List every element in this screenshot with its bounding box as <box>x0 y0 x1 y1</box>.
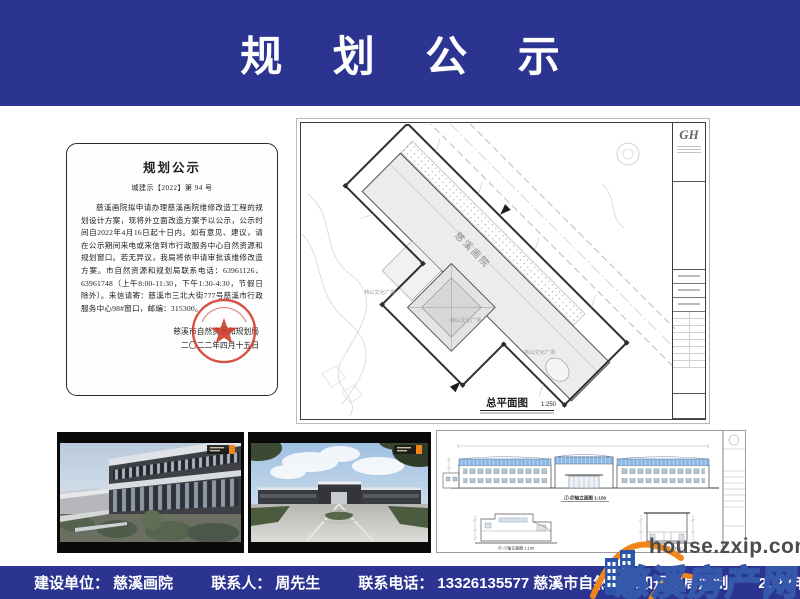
official-seal-icon <box>189 296 259 366</box>
builder-value: 慈溪画院 <box>113 575 173 592</box>
elevation-title-block <box>723 431 745 552</box>
phone-label: 联系电话： <box>358 575 433 592</box>
site-plan-drawing: 慈溪画院 峙山文化广场 峙山文化广场 峙山文化广场 总平面图 1:250 <box>302 124 675 419</box>
section-label-2: 1-1剖面图 1:150 <box>653 545 683 551</box>
footer-producer-info: 慈溪市自然资源和规划局监制 2022年4月15日 <box>533 572 800 593</box>
plan-scale: 1:250 <box>541 402 557 408</box>
notice-doc-number: 城建示【2022】第 94 号 <box>81 183 263 193</box>
phone-value: 13326135577 <box>437 575 529 592</box>
tree-symbol-icon <box>617 143 639 165</box>
page-title: 规 划 公 示 <box>220 23 580 84</box>
gh-logo: GH <box>673 123 705 182</box>
site-plan-sheet: 慈溪画院 峙山文化广场 峙山文化广场 峙山文化广场 总平面图 1:250 GH <box>296 118 710 424</box>
main-elevation <box>443 444 719 488</box>
render-logo-icon <box>394 445 422 454</box>
header-banner: 规 划 公 示 <box>0 0 800 106</box>
plan-title: 总平面图 <box>486 396 528 409</box>
render-logo-icon <box>207 445 235 454</box>
site-plan-frame: 慈溪画院 峙山文化广场 峙山文化广场 峙山文化广场 总平面图 1:250 GH <box>300 122 706 420</box>
section-label-1: ⑰-①轴立面图 1:150 <box>498 545 535 551</box>
builder-label: 建设单位： <box>34 575 109 592</box>
render-2-image <box>248 432 431 553</box>
elevation-sheet: ①-⑰轴立面图 1:150 ⑰-①轴立面图 1:150 <box>436 430 746 553</box>
section-drawing-2 <box>639 513 695 543</box>
footer-date: 2022年4月15日 <box>758 575 800 592</box>
plaza-label: 峙山文化广场 <box>524 348 555 356</box>
footer-bar: 建设单位：慈溪画院 联系人：周先生 联系电话：13326135577 慈溪市自然… <box>0 566 800 599</box>
footer-contact-info: 建设单位：慈溪画院 联系人：周先生 联系电话：13326135577 <box>34 572 533 593</box>
notice-card: 规划公示 城建示【2022】第 94 号 慈溪画院拟申请办理慈溪画院维修改造工程… <box>66 143 278 396</box>
elevation-main-label: ①-⑰轴立面图 1:150 <box>564 495 607 502</box>
contact-label: 联系人： <box>211 575 271 592</box>
render-photo-2 <box>248 432 431 553</box>
render-1-image <box>57 432 244 553</box>
elevation-drawing: ①-⑰轴立面图 1:150 ⑰-①轴立面图 1:150 <box>437 431 745 552</box>
render-photo-1 <box>57 432 244 553</box>
contact-value: 周先生 <box>275 575 320 592</box>
title-block: GH <box>672 123 705 419</box>
producer-text: 慈溪市自然资源和规划局监制 <box>533 575 728 592</box>
notice-title: 规划公示 <box>81 157 263 176</box>
planning-notice-poster: 规 划 公 示 规划公示 城建示【2022】第 94 号 慈溪画院拟申请办理慈溪… <box>0 0 800 599</box>
section-drawing-1 <box>473 514 557 543</box>
plaza-label: 峙山文化广场 <box>450 316 481 324</box>
plaza-label: 峙山文化广场 <box>364 288 395 296</box>
